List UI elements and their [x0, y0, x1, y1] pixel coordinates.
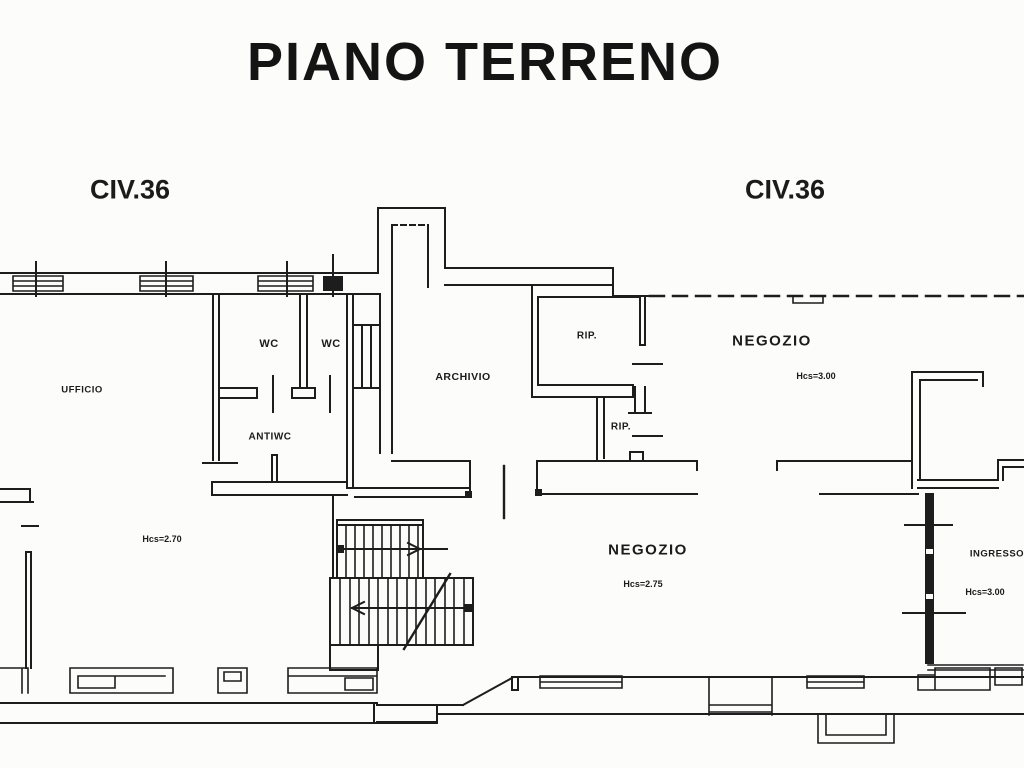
shop-divider-wall	[535, 461, 918, 496]
dashed-property-line	[650, 296, 1024, 303]
duct-cluster	[347, 287, 472, 498]
floor-plan-drawing	[0, 0, 1024, 768]
rip1-walls	[532, 285, 662, 413]
left-side-walls	[0, 489, 38, 668]
height-note-negozio-top: Hcs=3.00	[796, 371, 835, 381]
room-label-negozio-bottom: NEGOZIO	[608, 542, 688, 559]
height-note-negozio-bottom: Hcs=2.75	[623, 579, 662, 589]
height-note-ufficio: Hcs=2.70	[142, 534, 181, 544]
room-label-archivio: ARCHIVIO	[435, 371, 490, 383]
shaft-projection	[378, 208, 445, 287]
room-label-rip2: RIP.	[611, 422, 631, 433]
room-label-ingresso: INGRESSO	[970, 549, 1024, 560]
ingresso-walls	[903, 372, 1024, 664]
antiwc-bottom-wall	[212, 455, 347, 495]
room-label-rip1: RIP.	[577, 331, 597, 342]
door-filled-wall	[925, 493, 934, 664]
window-dark-panel	[323, 276, 343, 291]
room-label-wc1: WC	[259, 338, 278, 350]
room-label-ufficio: UFFICIO	[61, 385, 103, 396]
height-note-ingresso: Hcs=3.00	[965, 587, 1004, 597]
room-label-wc2: WC	[321, 338, 340, 350]
room-label-negozio-top: NEGOZIO	[732, 333, 812, 350]
top-exterior-wall	[0, 255, 378, 296]
room-label-antiwc: ANTIWC	[249, 432, 292, 443]
floor-plan-page: PIANO TERRENO CIV.36 CIV.36	[0, 0, 1024, 768]
storefront-walls	[0, 665, 1024, 743]
stairs	[330, 497, 473, 670]
top-wall-right	[445, 268, 650, 296]
stair-break-line	[404, 574, 450, 649]
